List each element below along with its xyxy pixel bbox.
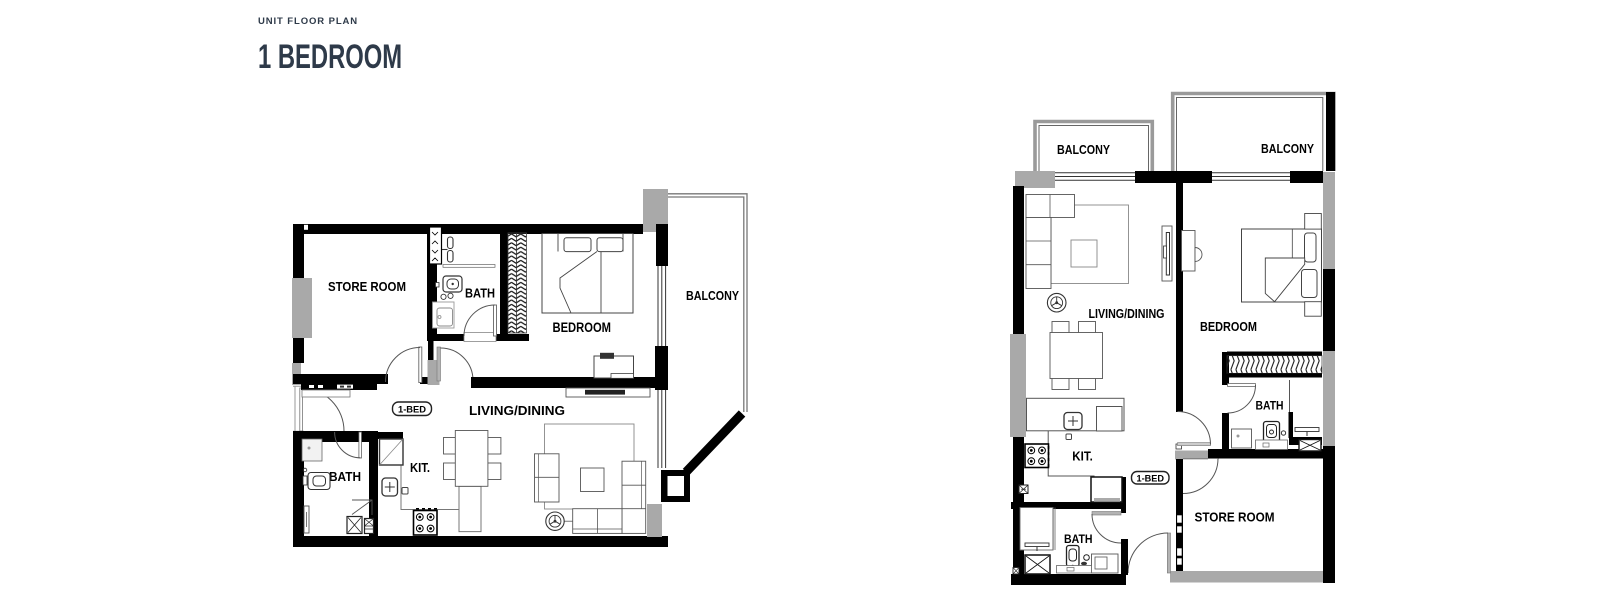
svg-text:BEDROOM: BEDROOM <box>553 320 612 335</box>
svg-text:BALCONY: BALCONY <box>686 289 740 303</box>
svg-text:KIT.: KIT. <box>1072 450 1093 464</box>
svg-text:BATH: BATH <box>329 469 361 484</box>
svg-text:1-BED: 1-BED <box>1137 474 1165 485</box>
svg-text:BEDROOM: BEDROOM <box>1200 319 1257 334</box>
svg-text:BALCONY: BALCONY <box>1261 142 1315 156</box>
svg-text:KIT.: KIT. <box>410 460 430 475</box>
svg-text:STORE ROOM: STORE ROOM <box>1195 510 1275 525</box>
svg-text:1-BED: 1-BED <box>398 405 426 416</box>
svg-text:LIVING/DINING: LIVING/DINING <box>469 403 565 418</box>
svg-text:STORE ROOM: STORE ROOM <box>328 279 406 294</box>
svg-text:BATH: BATH <box>465 286 495 301</box>
svg-text:BALCONY: BALCONY <box>1057 143 1111 157</box>
svg-text:BATH: BATH <box>1064 532 1093 546</box>
svg-text:BATH: BATH <box>1256 399 1284 413</box>
svg-text:LIVING/DINING: LIVING/DINING <box>1089 306 1165 321</box>
